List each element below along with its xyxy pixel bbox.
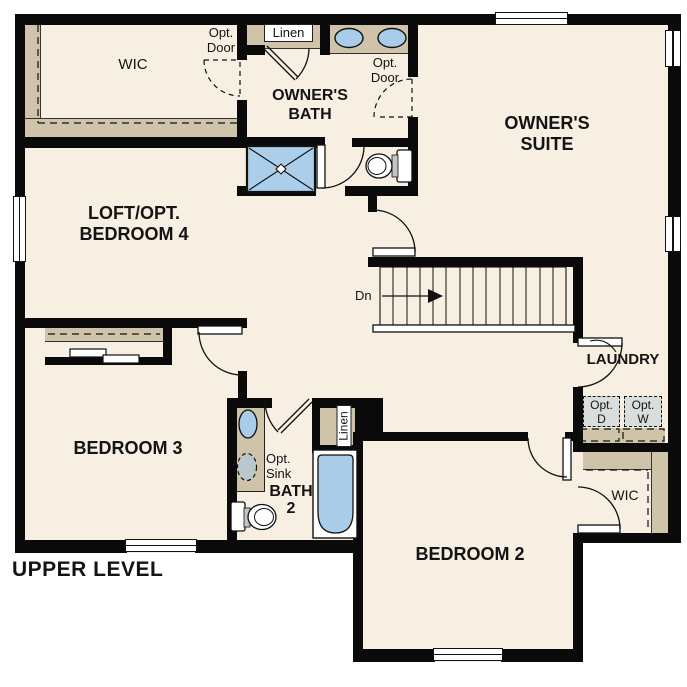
label-bedroom2-wic: WIC	[611, 487, 638, 504]
owner-toilet-icon	[366, 150, 412, 182]
window-right-upper	[665, 30, 681, 67]
label-opt-washer: Opt.W	[624, 398, 662, 426]
label-bath2: BATH2	[269, 484, 312, 518]
window-left	[13, 196, 26, 262]
double-sink-icon	[335, 29, 406, 48]
label-loft-bedroom4: LOFT/OPT.BEDROOM 4	[79, 203, 188, 245]
bath2-sink-icon	[238, 410, 258, 481]
label-bath2-linen: Linen	[337, 405, 352, 447]
window-right-mid	[665, 216, 681, 252]
label-laundry: LAUNDRY	[587, 351, 660, 369]
window-bedroom3	[125, 539, 197, 552]
window-top-owners-suite	[495, 12, 568, 25]
shower-icon	[247, 146, 315, 192]
label-opt-dryer: Opt.D	[583, 398, 620, 426]
label-bedroom3: BEDROOM 3	[73, 438, 182, 459]
label-opt-door-left: Opt.Door	[207, 25, 235, 56]
page-title: UPPER LEVEL	[12, 558, 163, 583]
label-opt-sink: Opt.Sink	[266, 451, 291, 482]
label-owner-linen: Linen	[264, 24, 313, 42]
label-opt-door-right: Opt.Door	[371, 55, 399, 86]
label-bedroom2: BEDROOM 2	[415, 544, 524, 565]
window-bedroom2	[433, 648, 503, 661]
stairs-direction-arrow-icon	[428, 289, 443, 303]
floorplan-upper-level: WIC Opt.Door Linen OWNER'SBATH Opt.Door …	[0, 0, 687, 687]
label-owners-suite: OWNER'SSUITE	[504, 113, 589, 155]
staircase	[373, 267, 575, 332]
label-owner-wic: WIC	[118, 56, 147, 74]
label-stairs-dn: Dn	[355, 288, 372, 303]
label-owners-bath: OWNER'SBATH	[272, 87, 348, 125]
bathtub-icon	[313, 450, 357, 538]
